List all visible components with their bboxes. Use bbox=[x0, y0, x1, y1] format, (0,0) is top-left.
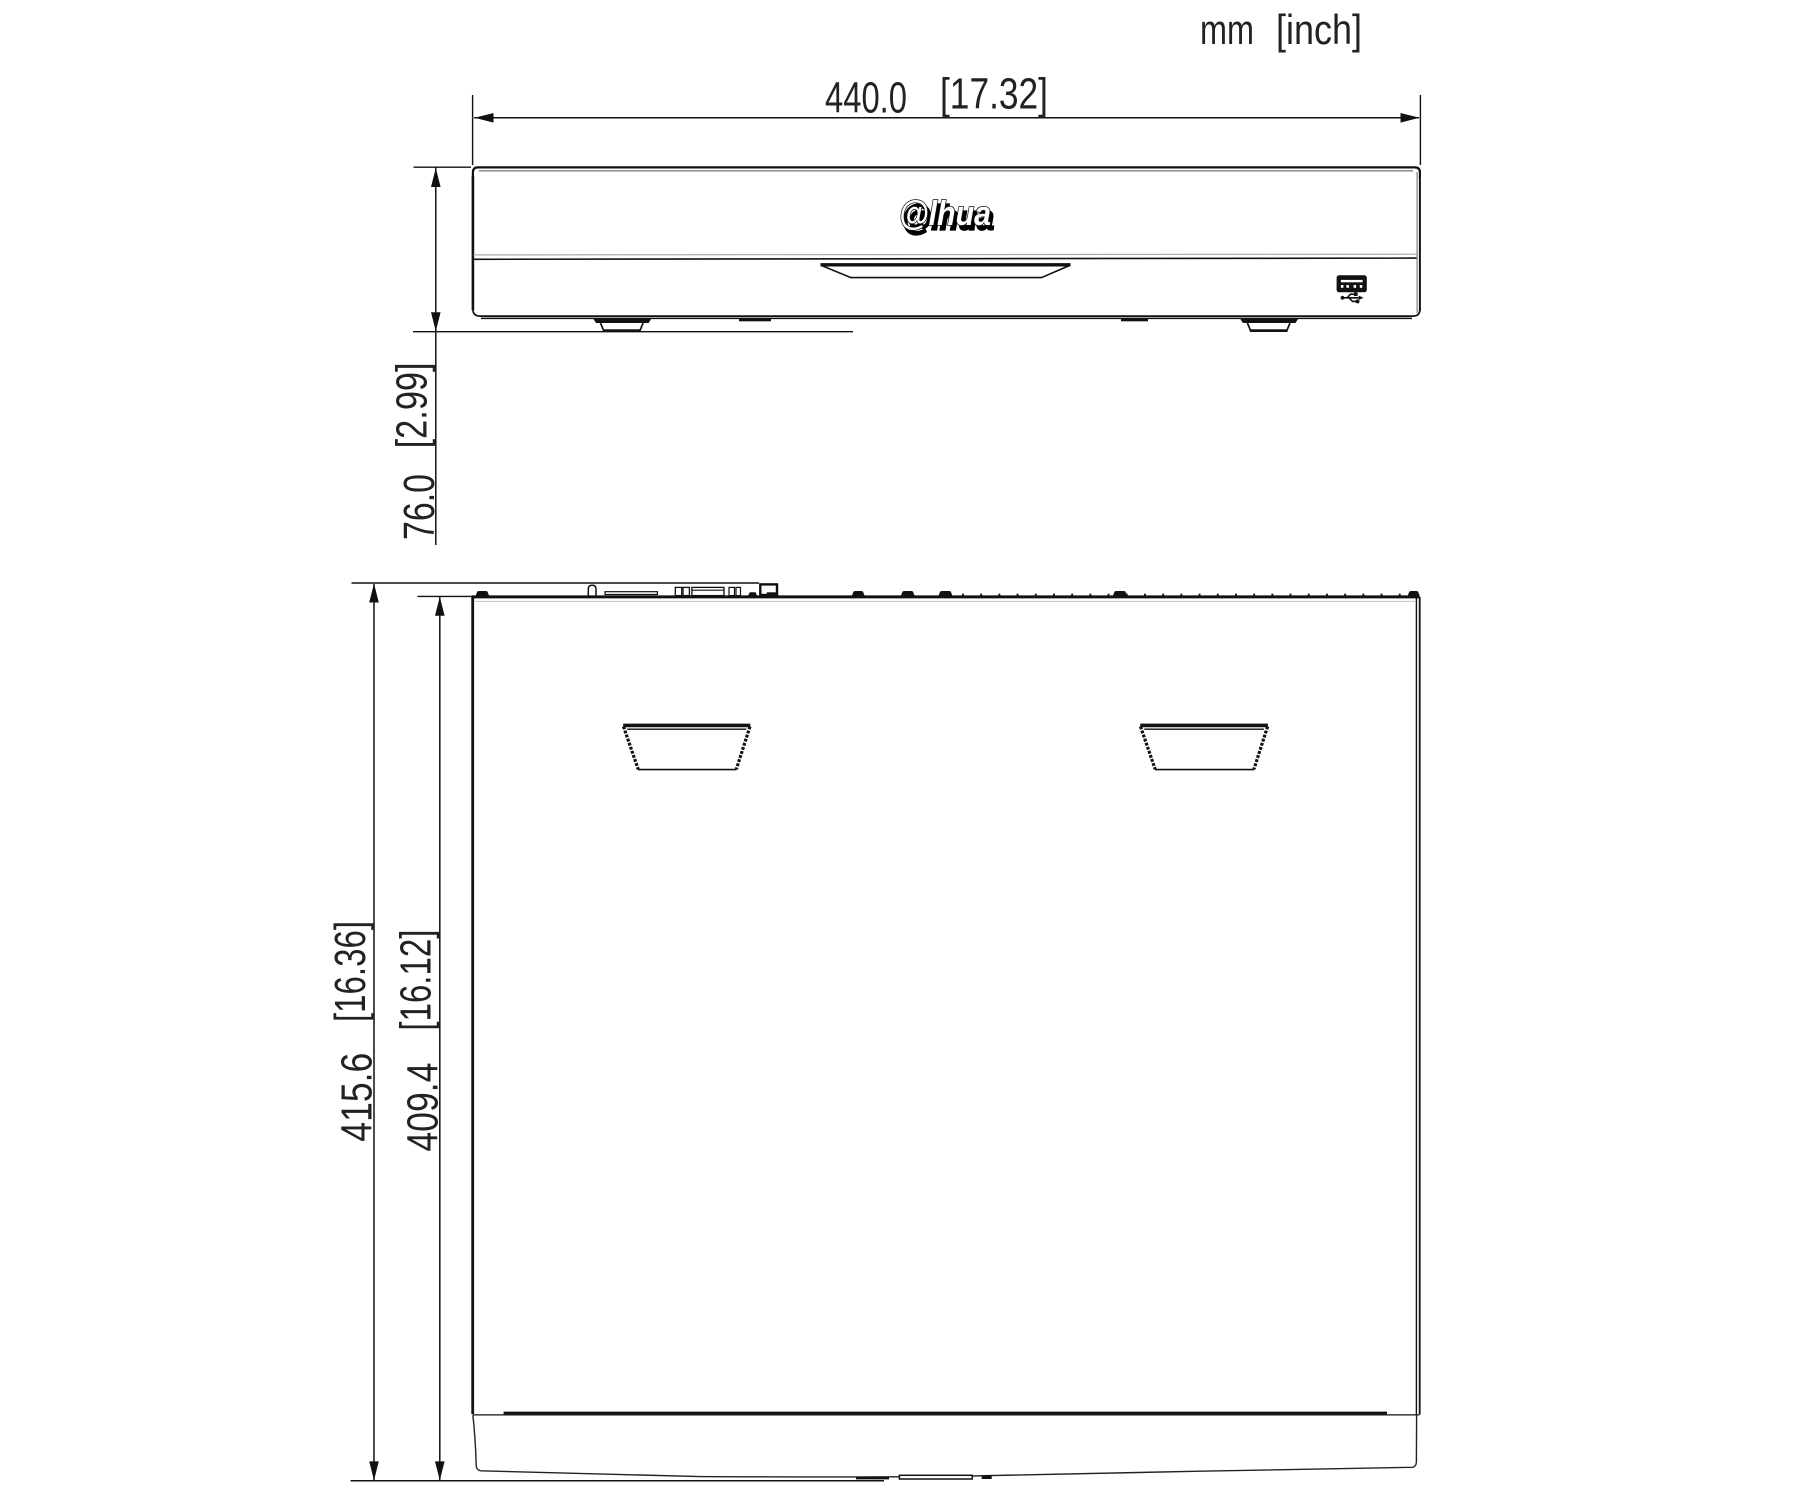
svg-text:@lhua: @lhua bbox=[899, 195, 991, 233]
svg-text:[inch]: [inch] bbox=[1276, 6, 1362, 53]
svg-text:409.4: 409.4 bbox=[399, 1063, 448, 1152]
svg-text:[2.99]: [2.99] bbox=[387, 362, 436, 448]
svg-text:[16.36]: [16.36] bbox=[326, 921, 375, 1022]
svg-text:mm: mm bbox=[1200, 6, 1254, 53]
svg-text:415.6: 415.6 bbox=[333, 1053, 382, 1142]
svg-text:76.0: 76.0 bbox=[395, 474, 444, 540]
svg-text:440.0: 440.0 bbox=[825, 74, 907, 123]
svg-text:[16.12]: [16.12] bbox=[392, 930, 441, 1031]
svg-text:[17.32]: [17.32] bbox=[940, 69, 1048, 118]
